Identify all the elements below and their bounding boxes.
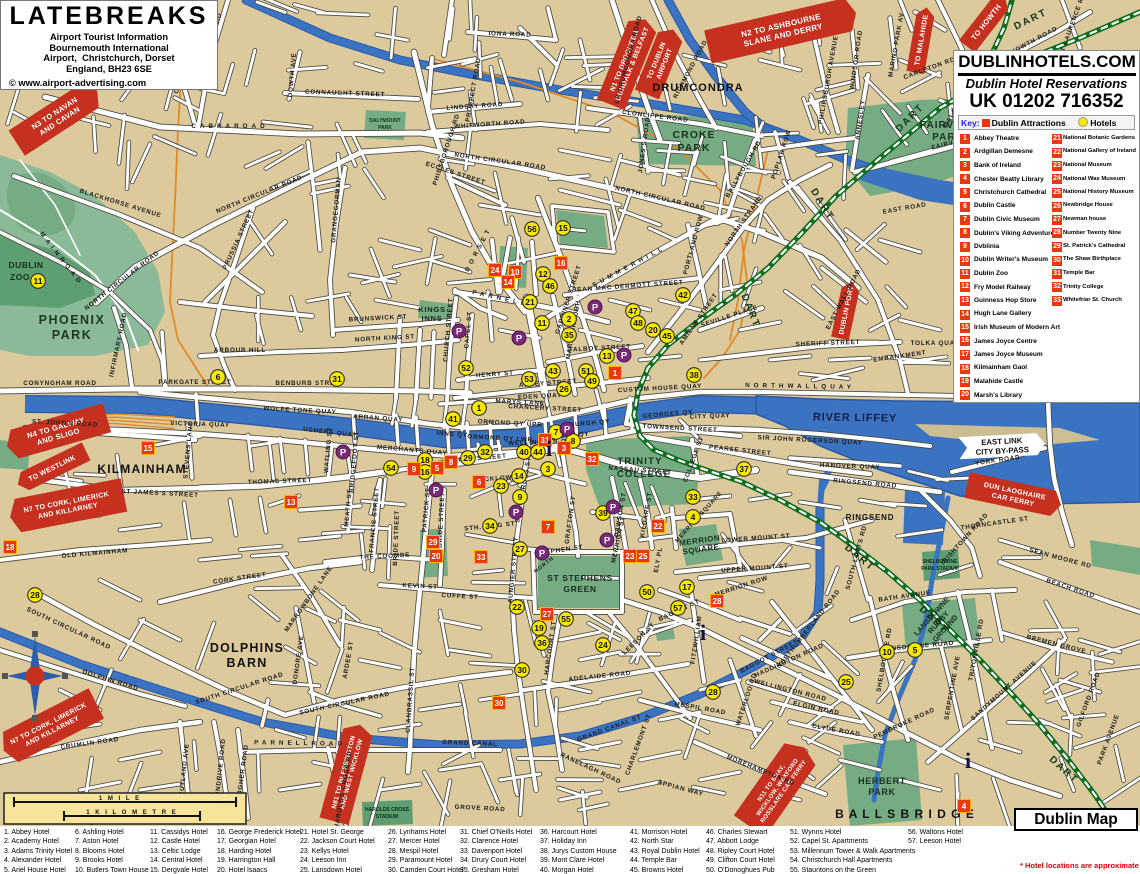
- svg-text:54: 54: [386, 463, 396, 473]
- svg-text:SHELBOURNE: SHELBOURNE: [922, 559, 958, 565]
- svg-text:CROKE: CROKE: [673, 129, 716, 141]
- svg-text:26: 26: [559, 384, 569, 394]
- svg-text:P: P: [621, 350, 628, 361]
- svg-text:ZOO: ZOO: [10, 272, 30, 282]
- svg-text:37: 37: [739, 464, 749, 474]
- svg-text:RIVER LIFFEY: RIVER LIFFEY: [813, 411, 897, 424]
- svg-text:13: 13: [602, 351, 612, 361]
- svg-text:IONA ROAD: IONA ROAD: [488, 30, 531, 38]
- svg-text:HERBERT: HERBERT: [858, 776, 906, 786]
- svg-text:19: 19: [534, 623, 544, 633]
- svg-text:DALYMOUNT: DALYMOUNT: [369, 118, 400, 124]
- svg-text:3: 3: [562, 444, 567, 453]
- svg-text:29: 29: [429, 538, 438, 547]
- svg-text:27: 27: [515, 544, 525, 554]
- svg-text:i: i: [700, 620, 706, 645]
- svg-text:42: 42: [678, 290, 688, 300]
- svg-text:COLLEGE: COLLEGE: [617, 469, 671, 480]
- svg-text:CITY QUAY: CITY QUAY: [689, 412, 730, 420]
- svg-text:INNS: INNS: [421, 314, 442, 323]
- svg-text:22: 22: [512, 602, 522, 612]
- svg-text:45: 45: [662, 331, 672, 341]
- svg-text:14: 14: [514, 471, 524, 481]
- svg-text:4: 4: [691, 512, 696, 522]
- svg-text:14: 14: [504, 278, 513, 287]
- svg-text:31: 31: [332, 374, 342, 384]
- svg-text:RINGSEND: RINGSEND: [846, 513, 895, 522]
- svg-text:TRINITY: TRINITY: [617, 456, 662, 467]
- svg-text:41: 41: [448, 414, 458, 424]
- svg-text:22: 22: [654, 522, 663, 531]
- svg-text:PHOENIX: PHOENIX: [39, 313, 106, 327]
- svg-text:8: 8: [571, 436, 576, 446]
- svg-text:P: P: [604, 535, 611, 546]
- svg-text:47: 47: [628, 306, 638, 316]
- svg-text:38: 38: [689, 370, 699, 380]
- svg-text:7: 7: [554, 427, 559, 437]
- svg-text:DRUMCONDRA: DRUMCONDRA: [652, 82, 743, 94]
- svg-text:1: 1: [477, 403, 482, 413]
- svg-text:24: 24: [598, 640, 608, 650]
- svg-text:16: 16: [557, 259, 566, 268]
- svg-text:28: 28: [708, 687, 718, 697]
- svg-text:7: 7: [546, 523, 551, 532]
- svg-text:28: 28: [30, 590, 40, 600]
- svg-text:2: 2: [567, 314, 572, 324]
- svg-text:46: 46: [545, 281, 555, 291]
- svg-text:34: 34: [485, 521, 495, 531]
- svg-text:56: 56: [527, 224, 537, 234]
- svg-text:1 K I L O M E T R E: 1 K I L O M E T R E: [86, 810, 178, 816]
- svg-text:9: 9: [518, 492, 523, 502]
- svg-text:6: 6: [477, 478, 482, 487]
- svg-text:29: 29: [463, 453, 473, 463]
- svg-text:17: 17: [682, 582, 692, 592]
- svg-text:49: 49: [587, 376, 597, 386]
- svg-text:P: P: [564, 424, 571, 435]
- svg-text:CONYNGHAM ROAD: CONYNGHAM ROAD: [23, 380, 96, 387]
- svg-text:53: 53: [524, 374, 534, 384]
- svg-text:28: 28: [713, 597, 722, 606]
- svg-text:27: 27: [543, 610, 552, 619]
- svg-text:12: 12: [538, 269, 548, 279]
- svg-text:KINGS: KINGS: [418, 305, 446, 314]
- svg-text:HAROLDS CROSS: HAROLDS CROSS: [365, 807, 410, 813]
- svg-text:DOLPHINS: DOLPHINS: [210, 641, 284, 655]
- svg-text:P: P: [513, 507, 520, 518]
- svg-text:25: 25: [841, 677, 851, 687]
- svg-text:15: 15: [144, 444, 153, 453]
- svg-text:P: P: [592, 302, 599, 313]
- svg-text:B A L L S B R I D G E: B A L L S B R I D G E: [835, 807, 975, 821]
- svg-text:23: 23: [496, 481, 506, 491]
- svg-text:ST STEPHENS: ST STEPHENS: [547, 573, 613, 583]
- svg-text:PARK: PARK: [678, 142, 711, 154]
- svg-text:i: i: [546, 436, 552, 461]
- svg-text:5: 5: [435, 464, 440, 473]
- svg-text:4: 4: [962, 802, 967, 811]
- svg-text:P: P: [456, 326, 463, 337]
- svg-text:18: 18: [420, 455, 430, 465]
- svg-text:PARK: PARK: [52, 328, 93, 342]
- svg-text:BARN: BARN: [227, 656, 268, 670]
- svg-text:DUBLIN: DUBLIN: [8, 260, 43, 270]
- svg-text:STADIUM: STADIUM: [376, 814, 398, 820]
- svg-text:i: i: [965, 748, 971, 773]
- svg-text:50: 50: [642, 587, 652, 597]
- svg-text:6: 6: [216, 372, 221, 382]
- svg-text:P: P: [539, 548, 546, 559]
- svg-text:10: 10: [882, 647, 892, 657]
- svg-text:PARK: PARK: [868, 787, 895, 797]
- svg-text:5: 5: [913, 645, 918, 655]
- svg-text:57: 57: [673, 603, 683, 613]
- svg-text:52: 52: [461, 363, 471, 373]
- svg-text:16: 16: [420, 467, 430, 477]
- svg-text:43: 43: [548, 366, 558, 376]
- svg-text:18: 18: [6, 543, 15, 552]
- svg-text:3: 3: [546, 464, 551, 474]
- svg-text:9: 9: [412, 465, 417, 474]
- svg-text:36: 36: [537, 638, 547, 648]
- svg-text:35: 35: [564, 330, 574, 340]
- svg-text:33: 33: [477, 553, 486, 562]
- svg-text:KILMAINHAM: KILMAINHAM: [97, 462, 186, 476]
- svg-text:PARK STADIUM: PARK STADIUM: [921, 566, 959, 572]
- svg-text:P: P: [610, 502, 617, 513]
- svg-text:15: 15: [558, 223, 568, 233]
- svg-text:21: 21: [525, 297, 535, 307]
- svg-text:11: 11: [34, 276, 43, 286]
- svg-text:24: 24: [491, 266, 500, 275]
- svg-text:P: P: [340, 447, 347, 458]
- svg-text:25: 25: [639, 552, 648, 561]
- svg-text:11: 11: [538, 318, 547, 328]
- svg-text:ARBOUR HILL: ARBOUR HILL: [214, 347, 266, 354]
- svg-text:13: 13: [287, 498, 296, 507]
- svg-text:48: 48: [633, 318, 643, 328]
- svg-text:30: 30: [495, 699, 504, 708]
- svg-text:33: 33: [688, 492, 698, 502]
- svg-text:P: P: [433, 485, 440, 496]
- svg-text:30: 30: [517, 665, 527, 675]
- svg-text:1 M I L E: 1 M I L E: [99, 796, 141, 802]
- svg-text:32: 32: [480, 447, 490, 457]
- svg-text:40: 40: [519, 447, 529, 457]
- svg-text:1: 1: [613, 369, 618, 378]
- svg-text:PARK: PARK: [378, 125, 392, 131]
- svg-text:23: 23: [626, 552, 635, 561]
- svg-text:P: P: [516, 333, 523, 344]
- svg-text:GREEN: GREEN: [563, 584, 596, 594]
- svg-text:CABRAROAD: CABRAROAD: [191, 123, 268, 130]
- svg-text:20: 20: [432, 552, 441, 561]
- svg-text:20: 20: [648, 325, 658, 335]
- svg-text:8: 8: [449, 458, 454, 467]
- svg-text:55: 55: [561, 614, 571, 624]
- svg-text:32: 32: [588, 455, 597, 464]
- svg-text:44: 44: [533, 447, 543, 457]
